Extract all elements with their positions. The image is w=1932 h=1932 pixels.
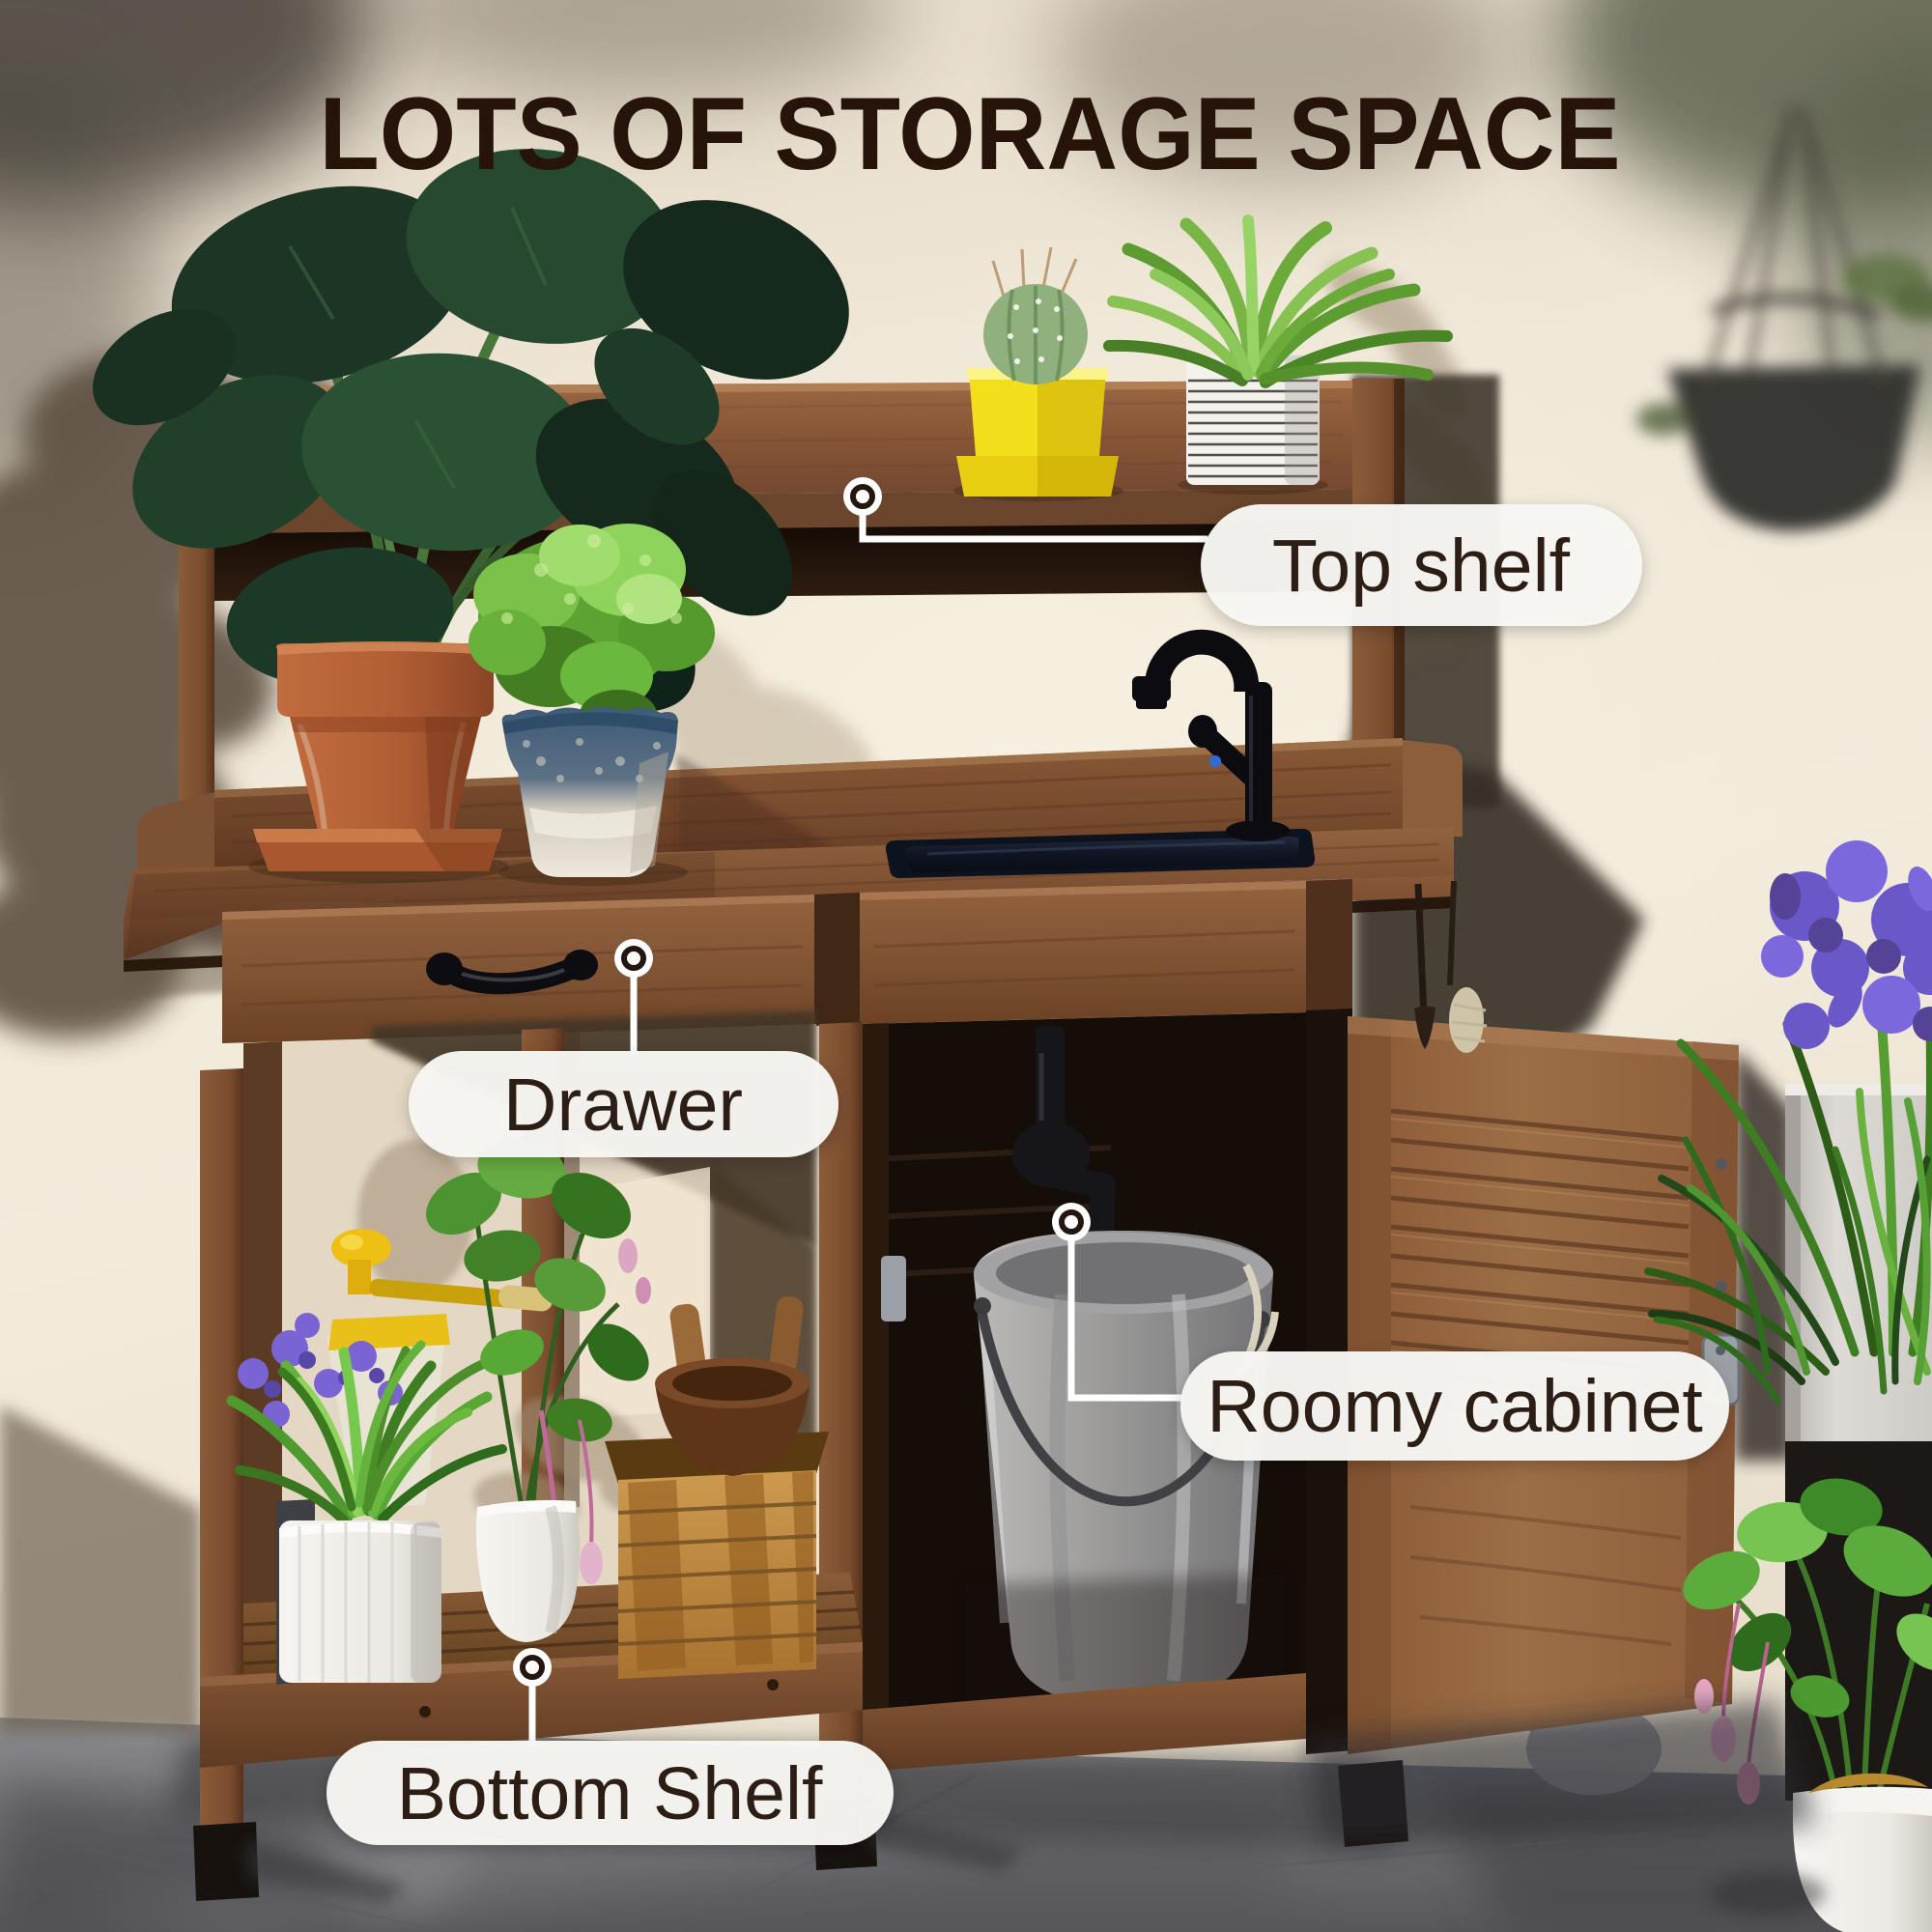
svg-text:LOTS OF STORAGE SPACE: LOTS OF STORAGE SPACE bbox=[319, 76, 1620, 192]
svg-text:Roomy cabinet: Roomy cabinet bbox=[1207, 1365, 1703, 1448]
svg-text:Top shelf: Top shelf bbox=[1272, 525, 1571, 608]
svg-text:Bottom Shelf: Bottom Shelf bbox=[397, 1752, 823, 1835]
svg-text:Drawer: Drawer bbox=[503, 1064, 743, 1147]
